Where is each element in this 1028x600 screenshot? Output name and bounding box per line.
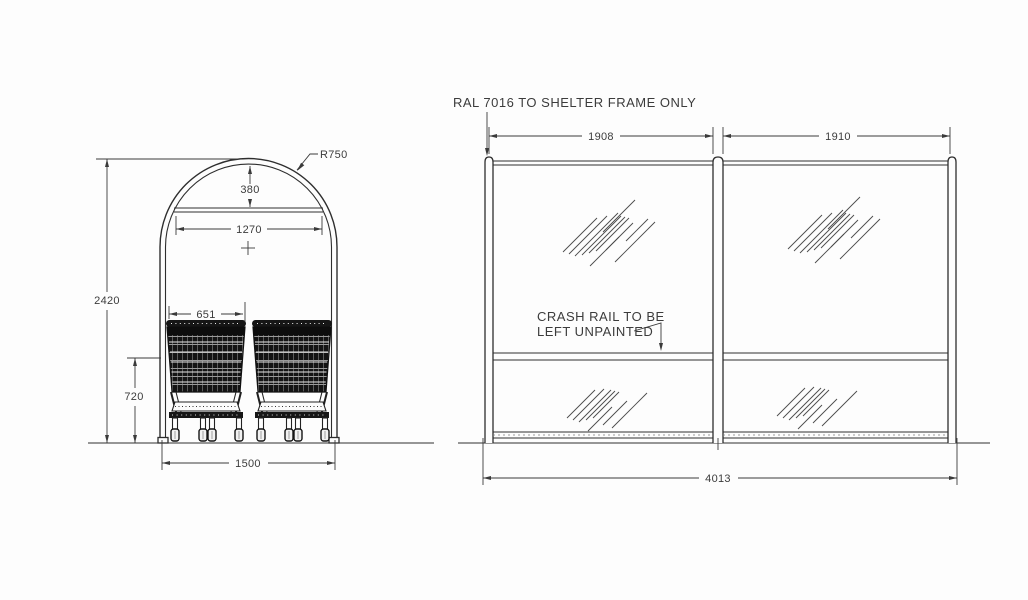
side-elevation-view: RAL 7016 TO SHELTER FRAME ONLY CRASH RAI… [453,95,990,485]
dim-apex-to-bar: 380 [240,166,259,207]
frame-paint-note: RAL 7016 TO SHELTER FRAME ONLY [453,95,696,156]
shopping-trolley-right [252,320,332,441]
dim-2420-label: 2420 [94,295,120,307]
center-mark [241,241,255,255]
dim-1270-label: 1270 [236,224,262,236]
dim-4013-label: 4013 [705,473,731,485]
crash-rail-note-line1: CRASH RAIL TO BE [537,309,665,324]
end-elevation-view: R750 380 1270 2420 [88,149,434,470]
dim-overall-width-side: 4013 [483,438,957,485]
glass-hatch-lower-left [567,389,647,431]
drawing-canvas: R750 380 1270 2420 [0,0,1028,600]
dim-overall-width-end: 1500 [162,440,335,470]
dim-651-label: 651 [196,309,215,321]
frame-post-right [948,157,956,443]
dim-trolley-width: 651 [169,302,245,322]
glass-hatch-lower-right [777,387,857,429]
dim-overall-height: 2420 [94,159,242,443]
shelter-technical-drawing: R750 380 1270 2420 [0,0,1028,600]
leader-arrow [485,148,489,156]
radius-label: R750 [320,149,348,161]
glass-hatch-upper-left [563,200,655,266]
glass-hatch-upper-right [788,197,880,263]
roof-cross-bar [174,208,323,212]
dim-1500-label: 1500 [235,458,261,470]
crash-rail-note: CRASH RAIL TO BE LEFT UNPAINTED [537,309,665,351]
dim-1908-label: 1908 [588,131,614,143]
dim-1910-label: 1910 [825,131,851,143]
dim-bay-left: 1908 [489,127,713,154]
dim-crash-rail-height: 720 [124,358,161,443]
leader-arrow [297,163,304,171]
dim-bay-right: 1910 [723,127,950,154]
frame-foot-right [329,438,339,444]
dim-380-label: 380 [240,184,259,196]
dim-bar-width: 1270 [176,216,322,236]
frame-note-text: RAL 7016 TO SHELTER FRAME ONLY [453,95,696,110]
dim-720-label: 720 [124,391,143,403]
shopping-trolley-left [166,320,246,441]
frame-post-left [485,157,493,443]
leader-arrow [659,343,663,351]
dim-radius: R750 [297,149,348,171]
frame-post-middle [713,157,723,443]
shelter-arch-frame [158,159,339,444]
frame-foot-left [158,438,168,444]
crash-rail-note-line2: LEFT UNPAINTED [537,324,653,339]
